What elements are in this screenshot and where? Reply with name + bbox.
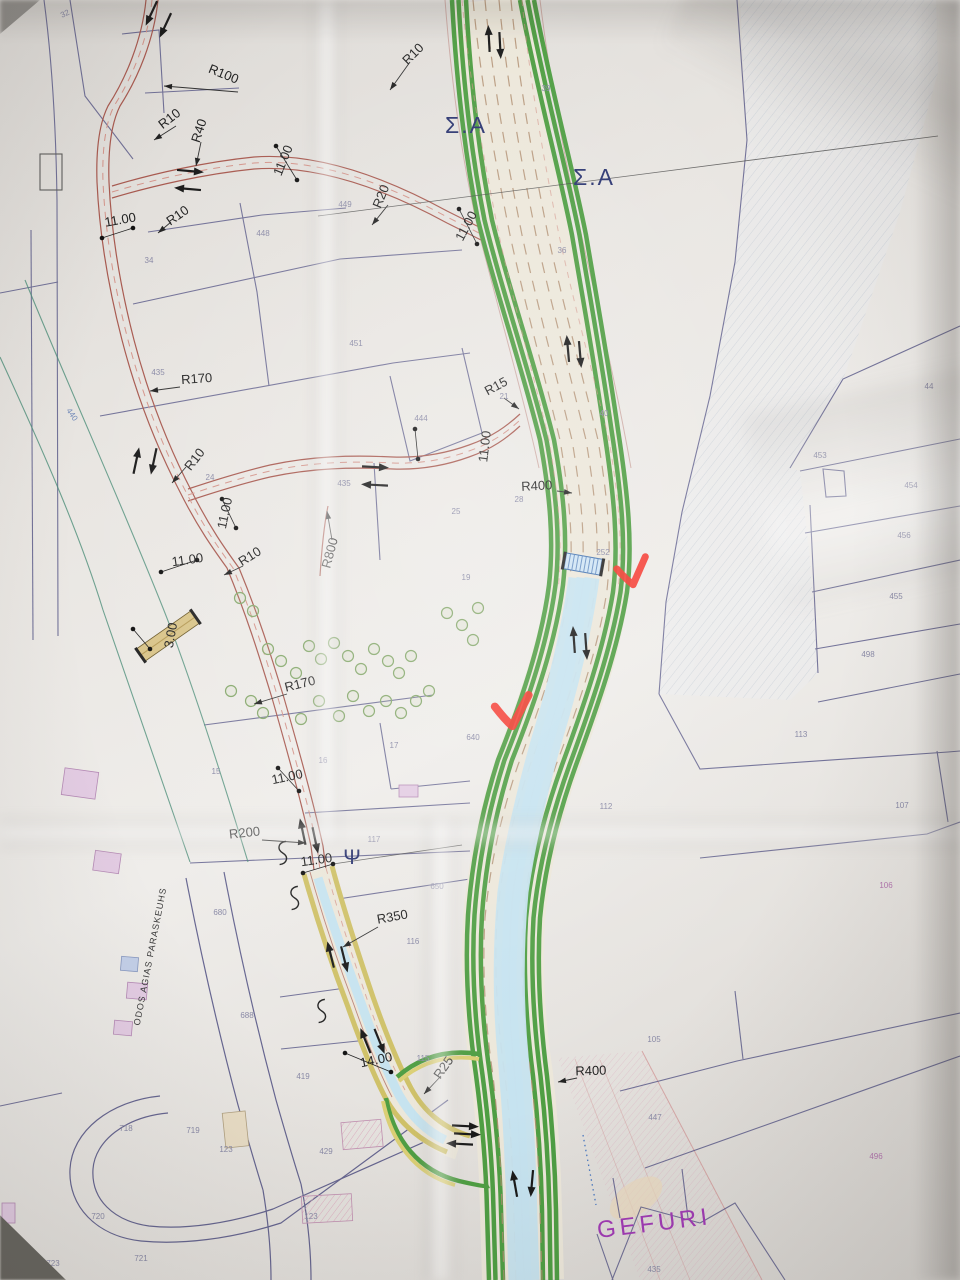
parcel-number: 112 <box>600 802 613 811</box>
traffic-arrow-shaft <box>183 188 201 190</box>
traffic-arrow-shaft <box>452 1125 470 1126</box>
dimension-line <box>415 429 418 459</box>
dimension-dot <box>100 236 105 241</box>
traffic-arrow-shaft <box>579 341 581 359</box>
dimension-dot <box>148 647 153 652</box>
dimension-dot <box>343 1051 348 1056</box>
tree-icon <box>364 706 375 717</box>
parcel-number: 449 <box>338 200 352 209</box>
tree-icon <box>383 656 394 667</box>
parcel-number: 680 <box>213 908 227 917</box>
parcel-number: 107 <box>895 801 909 810</box>
dimension-dot <box>159 570 164 575</box>
parcel-number: 117 <box>368 835 381 844</box>
dimension-dot <box>234 526 239 531</box>
traffic-arrow-head <box>156 27 167 39</box>
tree-icon <box>457 620 468 631</box>
parcel-number: 720 <box>91 1212 105 1221</box>
tree-icon <box>304 641 315 652</box>
stream-squiggle-icon <box>287 885 303 911</box>
culvert-box-symbol <box>40 154 62 190</box>
tree-icon <box>411 696 422 707</box>
station-label: Σ.Α <box>445 112 487 138</box>
tree-icon <box>468 635 479 646</box>
dimension-dot <box>457 207 462 212</box>
parcel-number: 17 <box>390 741 399 750</box>
building-footprint <box>120 956 138 971</box>
parcel-number: 723 <box>46 1259 60 1268</box>
parcel-number: 105 <box>647 1035 661 1044</box>
tree-icon <box>369 644 380 655</box>
tree-icon <box>334 711 345 722</box>
parcel-number: 21 <box>500 392 509 401</box>
building-footprint <box>2 1203 15 1223</box>
dimension-label: R10 <box>155 105 183 132</box>
parcel-number: 116 <box>407 937 420 946</box>
tree-icon <box>406 651 417 662</box>
tree-icon <box>394 668 405 679</box>
traffic-arrow-shaft <box>499 32 500 50</box>
parcel-number: 40 <box>600 409 609 418</box>
leader-arrowhead <box>557 1078 566 1085</box>
traffic-arrow-shaft <box>531 1170 533 1188</box>
traffic-arrow-icon <box>130 446 143 474</box>
tree-icon <box>235 593 246 604</box>
station-label: Σ.Α <box>573 164 615 190</box>
dimension-dot <box>297 789 302 794</box>
dimension-dot <box>416 457 421 462</box>
parcel-number: 123 <box>219 1145 233 1154</box>
building-footprint <box>222 1111 249 1148</box>
parcel-number: 440 <box>65 407 80 424</box>
tree-icon <box>276 656 287 667</box>
old-road-band-southeast <box>558 1051 762 1280</box>
dimension-label: R400 <box>521 477 553 494</box>
traffic-arrow-head <box>147 464 157 475</box>
traffic-arrow-shaft <box>370 485 388 486</box>
building-footprint <box>341 1119 383 1149</box>
dimension-dot <box>131 627 136 632</box>
traffic-arrow-shaft <box>489 34 490 52</box>
station-label: Ψ <box>343 846 361 869</box>
parcel-number: 455 <box>889 592 903 601</box>
tree-icon <box>343 651 354 662</box>
leader-arrowhead <box>511 402 521 411</box>
tree-icon <box>226 686 237 697</box>
dimension-dot <box>274 144 279 149</box>
traffic-arrow-head <box>194 167 205 176</box>
parcel-number: 498 <box>861 650 875 659</box>
stream-squiggle-icon <box>314 998 330 1024</box>
dimension-dot <box>295 178 300 183</box>
parcel-number: 456 <box>897 531 911 540</box>
traffic-arrow-head <box>133 446 143 457</box>
dimension-label: 11.00 <box>475 430 494 463</box>
parcel-number: 44 <box>925 382 934 391</box>
traffic-arrow-icon <box>362 462 389 471</box>
traffic-arrow-shaft <box>177 170 195 172</box>
dimension-dot <box>389 1070 394 1075</box>
tree-icon <box>424 686 435 697</box>
parcel-number: 453 <box>813 451 827 460</box>
parcel-number: 113 <box>795 730 808 739</box>
dimension-label: 11.00 <box>270 766 304 787</box>
parcel-number: 15 <box>212 767 221 776</box>
dimension-dot <box>131 226 136 231</box>
parcel-number: 39 <box>542 84 551 93</box>
dimension-label: R100 <box>206 61 240 87</box>
building-footprint <box>61 768 98 799</box>
tree-icon <box>396 708 407 719</box>
parcel-number: 447 <box>648 1113 662 1122</box>
parcel-number: 429 <box>319 1147 333 1156</box>
parcel-number: 688 <box>240 1011 254 1020</box>
street-name-label: ODOS AGIAS PARASKEUHS <box>132 887 169 1027</box>
parcel-number: 16 <box>319 756 328 765</box>
traffic-arrow-shaft <box>153 448 157 466</box>
building-footprint <box>399 785 418 797</box>
tree-icon <box>348 691 359 702</box>
traffic-arrow-shaft <box>362 466 380 467</box>
tree-icon <box>473 603 484 614</box>
dimension-label: 11.00 <box>300 850 333 869</box>
tree-icon <box>381 696 392 707</box>
traffic-arrow-shaft <box>574 635 575 653</box>
dimension-label: R10 <box>399 40 426 67</box>
parcel-number: 123 <box>304 1212 318 1221</box>
dimension-label: R170 <box>181 370 213 387</box>
dimension-label: R800 <box>318 536 341 570</box>
dimension-label: R170 <box>283 673 317 695</box>
dimension-label: R200 <box>228 823 260 841</box>
dimension-label: R400 <box>575 1062 607 1078</box>
parcel-number: 650 <box>430 882 444 891</box>
parcel-number: 252 <box>596 548 610 557</box>
parcel-number: 28 <box>515 495 524 504</box>
tree-icon <box>263 644 274 655</box>
parcel-number: 721 <box>134 1254 148 1263</box>
dimension-label: R10 <box>181 445 208 473</box>
tree-icon <box>314 696 325 707</box>
leader-arrowhead <box>152 133 162 142</box>
tree-icon <box>329 638 340 649</box>
parcel-number: 718 <box>119 1124 133 1133</box>
tree-icon <box>258 708 269 719</box>
traffic-arrow-shaft <box>454 1133 472 1134</box>
parcel-number: 435 <box>337 479 351 488</box>
parcel-number: 435 <box>151 368 165 377</box>
plan-photo: R100R10R4011.0011.00R10R10R2011.00R170R1… <box>0 0 960 1280</box>
dimension-label: R10 <box>236 544 264 569</box>
traffic-arrow-shaft <box>567 344 569 362</box>
parcel-number: 640 <box>466 733 480 742</box>
traffic-arrow-icon <box>147 447 160 475</box>
parcel-number: 454 <box>904 481 918 490</box>
tree-icon <box>442 608 453 619</box>
traffic-arrow-head <box>379 463 389 472</box>
parcel-number: 25 <box>452 507 461 516</box>
traffic-arrow-icon <box>174 184 202 194</box>
parcel-number: 36 <box>558 246 567 255</box>
tree-icon <box>316 654 327 665</box>
trees-layer <box>226 593 484 725</box>
dimension-label: 11.00 <box>171 550 204 569</box>
parcel-number: 419 <box>296 1072 310 1081</box>
dimension-label: R20 <box>369 182 392 210</box>
parcel-number: 24 <box>206 473 215 482</box>
parcel-number: 19 <box>462 573 471 582</box>
building-footprint <box>93 850 122 873</box>
traffic-arrow-shaft <box>585 633 586 651</box>
traffic-arrow-icon <box>361 480 388 489</box>
parcel-number: 496 <box>869 1152 883 1161</box>
dimension-label: R40 <box>188 117 210 144</box>
traffic-arrow-head <box>174 184 185 193</box>
tree-icon <box>356 664 367 675</box>
parcel-number: 444 <box>414 414 428 423</box>
parcel-number: 451 <box>349 339 363 348</box>
dimension-dot <box>301 871 306 876</box>
parcel-number: 719 <box>186 1126 200 1135</box>
traffic-arrow-head <box>361 480 371 489</box>
leader-arrowhead <box>164 83 172 89</box>
plan-map-svg: R100R10R4011.0011.00R10R10R2011.00R170R1… <box>0 0 960 1280</box>
dimension-label: R350 <box>376 906 409 926</box>
dimension-label: 11.00 <box>214 496 235 530</box>
traffic-arrow-shaft <box>313 827 317 845</box>
dimension-dot <box>413 427 418 432</box>
leader-arrowhead <box>388 82 397 92</box>
parcel-number: 106 <box>879 881 893 890</box>
tree-icon <box>248 606 259 617</box>
stream-squiggle-icon <box>275 840 291 866</box>
dimension-dot <box>475 242 480 247</box>
parcel-number: 34 <box>145 256 154 265</box>
building-footprint <box>113 1020 132 1036</box>
traffic-arrow-shaft <box>134 456 138 474</box>
parcel-number: 115 <box>417 1054 430 1063</box>
traffic-arrow-shaft <box>455 1144 473 1145</box>
tree-icon <box>296 714 307 725</box>
traffic-arrow-shaft <box>163 13 171 29</box>
tree-icon <box>246 696 257 707</box>
dimension-label: 11.00 <box>270 143 296 178</box>
parcel-number: 32 <box>59 8 71 20</box>
parcel-number: 448 <box>256 229 270 238</box>
parcel-number: 435 <box>647 1265 661 1274</box>
